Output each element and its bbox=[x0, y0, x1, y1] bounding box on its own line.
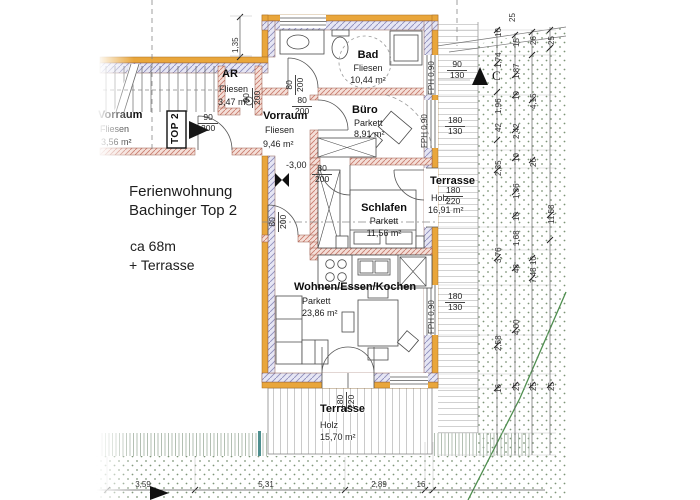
dim-label: 25 bbox=[547, 382, 556, 391]
dim-label: 16 bbox=[417, 480, 426, 489]
room-area-bad: 10,44 m² bbox=[338, 75, 398, 85]
dim-label: 2,35 bbox=[494, 160, 503, 176]
room-area-wohnen: 23,86 m² bbox=[302, 308, 338, 318]
sink bbox=[358, 259, 390, 275]
plan-title-line4: + Terrasse bbox=[129, 257, 195, 273]
room-floor-buero: Parkett bbox=[354, 118, 383, 128]
window-fph-label-wohnen: FPH 0,90 bbox=[427, 300, 436, 334]
dim-label: 26 bbox=[529, 36, 538, 45]
opening-size-label: 180220 bbox=[443, 186, 463, 207]
room-name-vorraum-links: Vorraum bbox=[98, 109, 142, 121]
dim-label: 16 bbox=[494, 384, 503, 393]
dim-label: 1,36 bbox=[512, 183, 521, 199]
dim-label: 2,42 bbox=[512, 123, 521, 139]
dim-label: 3,76 bbox=[494, 247, 503, 263]
terrace-right-decking bbox=[438, 22, 478, 433]
opening-size-label: 180130 bbox=[445, 292, 465, 313]
dim-label: 25 bbox=[529, 382, 538, 391]
room-area-vorraum: 9,46 m² bbox=[263, 139, 294, 149]
grass-band bbox=[100, 433, 268, 456]
chair bbox=[368, 348, 388, 360]
room-area-terrasse-unten: 15,70 m² bbox=[320, 432, 356, 442]
chair bbox=[342, 312, 354, 332]
plan-title-line1: Ferienwohnung bbox=[129, 183, 232, 200]
dim-label: 25 bbox=[512, 382, 521, 391]
room-area-buero: 8,91 m² bbox=[354, 129, 385, 139]
room-name-ar: AR bbox=[222, 68, 238, 80]
opening-size-label: 80200 bbox=[285, 75, 306, 95]
dim-label: 25 bbox=[547, 36, 556, 45]
window-fph-label-bad: FPH 0,90 bbox=[427, 61, 436, 95]
wardrobe-buero bbox=[318, 138, 376, 157]
room-name-buero: Büro bbox=[352, 104, 378, 116]
room-floor-wohnen: Parkett bbox=[302, 296, 331, 306]
dim-label: 42 bbox=[494, 123, 503, 132]
room-floor-bad: Fliesen bbox=[340, 63, 396, 73]
plan-title-line3: ca 68m bbox=[130, 238, 176, 254]
post bbox=[258, 431, 261, 456]
unit-tag-label: TOP 2 bbox=[170, 113, 181, 144]
dim-label: 15 bbox=[512, 38, 521, 47]
opening-size-label: 80200 bbox=[268, 212, 289, 232]
window-fph-label-buero: FPH 0,90 bbox=[420, 114, 429, 148]
room-name-bad: Bad bbox=[340, 49, 396, 61]
dim-label: 10 bbox=[529, 256, 538, 265]
dim-label: 11,58 bbox=[547, 205, 556, 224]
nightstand-right bbox=[416, 236, 424, 248]
dim-label: 1,68 bbox=[512, 230, 521, 246]
dim-label: 10 bbox=[512, 212, 521, 221]
dim-label: 4,00 bbox=[512, 319, 521, 335]
room-area-schlafen: 11,56 m² bbox=[352, 228, 416, 238]
room-floor-terrasse-unten: Holz bbox=[320, 420, 338, 430]
dim-label: 25 bbox=[508, 13, 517, 22]
dim-label: 10 bbox=[512, 91, 521, 100]
dim-label: 1,74 bbox=[494, 52, 503, 68]
opening-size-label: 80200 bbox=[292, 96, 312, 117]
room-floor-vorraum: Fliesen bbox=[265, 125, 294, 135]
room-name-schlafen: Schlafen bbox=[352, 202, 416, 214]
room-floor-schlafen: Parkett bbox=[352, 216, 416, 226]
dim-label: 2,89 bbox=[371, 480, 387, 489]
dim-label: 7,48 bbox=[529, 267, 538, 283]
level-marker-label: -3,00 bbox=[286, 160, 307, 170]
dim-label: 3,59 bbox=[135, 480, 151, 489]
dim-label: 1,96 bbox=[494, 98, 503, 114]
dim-label: 5,31 bbox=[258, 480, 274, 489]
section-letter: C bbox=[492, 68, 501, 84]
dim-label: 4,15 bbox=[529, 93, 538, 109]
dim-label: 26 bbox=[529, 158, 538, 167]
room-area-vorraum-links: 3,56 m² bbox=[101, 137, 132, 147]
room-name-wohnen: Wohnen/Essen/Kochen bbox=[294, 281, 416, 293]
dim-label: 2,58 bbox=[494, 335, 503, 351]
washbasin bbox=[280, 30, 324, 54]
opening-size-label: 90200 bbox=[198, 113, 218, 134]
plan-title-line2: Bachinger Top 2 bbox=[129, 202, 237, 219]
room-floor-vorraum-links: Fliesen bbox=[100, 124, 129, 134]
floorplan-canvas: AR Fliesen 3,47 m² Bad Fliesen 10,44 m² … bbox=[0, 0, 700, 500]
dim-label-wall-offset: 1,35 bbox=[231, 37, 240, 53]
opening-size-label: 90200 bbox=[242, 88, 263, 108]
dim-label: 10 bbox=[512, 153, 521, 162]
opening-size-label: 80200 bbox=[312, 164, 332, 185]
opening-size-label: 180220 bbox=[336, 392, 357, 412]
nightstand-left bbox=[336, 236, 348, 248]
opening-size-label: 90130 bbox=[447, 60, 467, 81]
dim-label: 48 bbox=[512, 264, 521, 273]
opening-size-label: 180130 bbox=[445, 116, 465, 137]
dim-label: 16 bbox=[494, 28, 503, 37]
dim-label: 1,87 bbox=[512, 63, 521, 79]
